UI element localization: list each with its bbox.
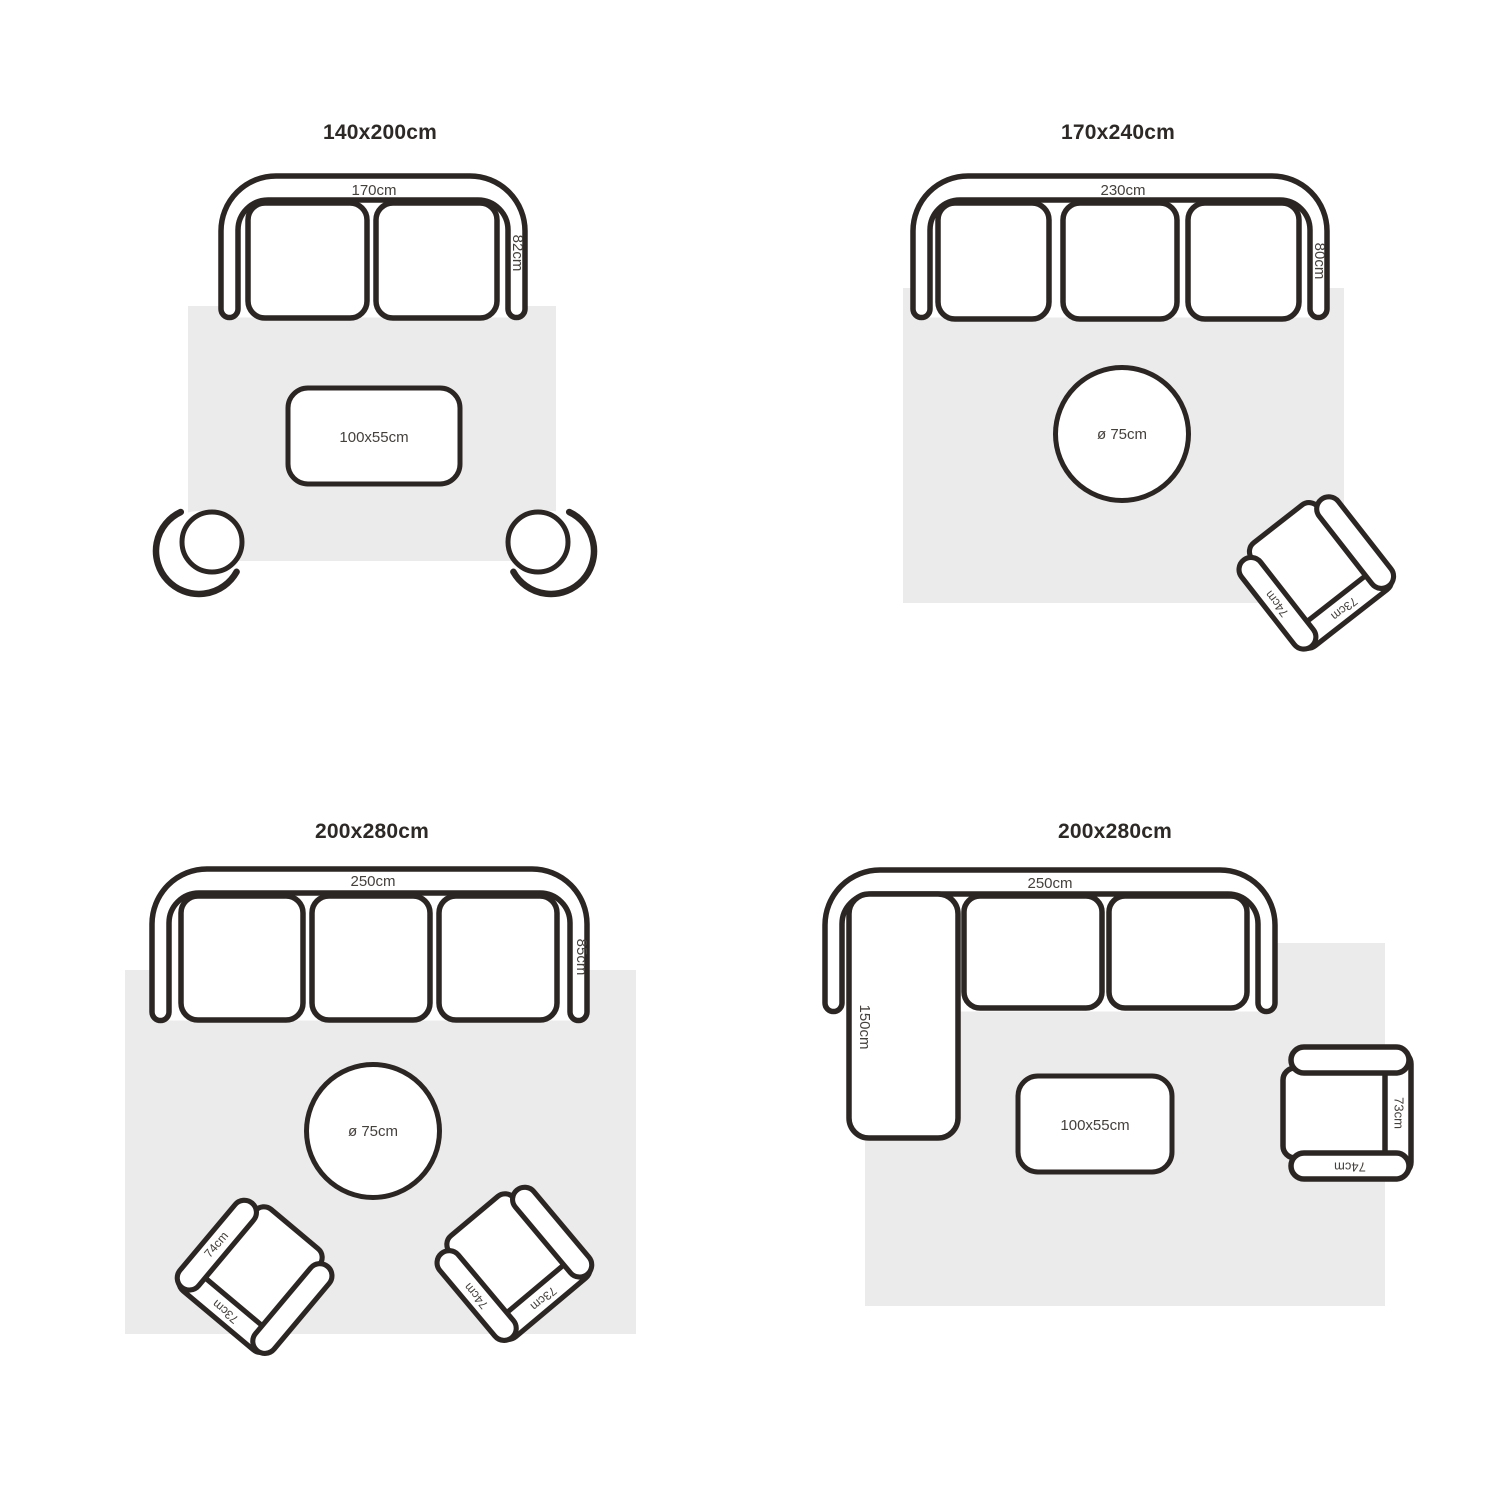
sofa-cushion [1188, 203, 1299, 319]
armchair-width-label: 73cm [1392, 1097, 1407, 1129]
tub-chair-left [156, 511, 242, 594]
sofa-2-seat: 170cm 82cm [221, 176, 526, 318]
armchair-arm-right [1291, 1047, 1409, 1073]
layout-140x200: 140x200cm 100x55cm 170cm 82cm [156, 121, 594, 594]
table-size-label: ø 75cm [348, 1123, 398, 1140]
sofa-depth-label: 80cm [1311, 243, 1328, 280]
coffee-table: 100x55cm [1018, 1076, 1172, 1172]
size-title: 140x200cm [323, 121, 437, 144]
floor-plan-canvas: 140x200cm 100x55cm 170cm 82cm 170x240cm [0, 0, 1500, 1500]
table-size-label: 100x55cm [339, 429, 408, 446]
size-title: 200x280cm [1058, 820, 1172, 843]
chair-seat [508, 512, 568, 572]
sofa-width-label: 230cm [1100, 182, 1145, 199]
sofa-depth-label: 85cm [573, 939, 590, 976]
sofa-cushion [312, 896, 430, 1020]
sofa-cushion [248, 203, 367, 318]
sofa-3-seat: 250cm 85cm [152, 869, 590, 1021]
size-title: 170x240cm [1061, 121, 1175, 144]
sofa-cushion [1063, 203, 1177, 319]
round-side-table: ø 75cm [307, 1065, 440, 1198]
sofa-width-label: 170cm [351, 182, 396, 199]
size-title: 200x280cm [315, 820, 429, 843]
layout-200x280-b: 200x280cm 250cm 150cm 100x55cm 74cm 73cm [825, 820, 1411, 1306]
chaise-length-label: 150cm [856, 1004, 873, 1049]
sofa-cushion [1109, 896, 1247, 1008]
sofa-depth-label: 82cm [509, 235, 526, 272]
coffee-table: 100x55cm [288, 388, 460, 484]
sofa-cushion [439, 896, 557, 1020]
chair-seat [182, 512, 242, 572]
table-size-label: ø 75cm [1097, 426, 1147, 443]
sofa-width-label: 250cm [1027, 875, 1072, 892]
sofa-cushion [181, 896, 303, 1020]
sofa-3-seat: 230cm 80cm [913, 176, 1328, 319]
armchair: 74cm 73cm [1283, 1047, 1411, 1179]
sofa-cushion [964, 896, 1102, 1008]
table-size-label: 100x55cm [1060, 1117, 1129, 1134]
armchair-depth-label: 74cm [1334, 1160, 1366, 1175]
layout-170x240: 170x240cm ø 75cm 230cm 80cm 74cm 73cm [903, 121, 1400, 655]
rug-size-guide: 140x200cm 100x55cm 170cm 82cm 170x240cm [0, 0, 1500, 1500]
layout-200x280-a: 200x280cm ø 75cm 250cm 85cm 74cm 73cm [125, 820, 636, 1360]
tub-chair-right [508, 511, 594, 594]
round-side-table: ø 75cm [1056, 368, 1189, 501]
sofa-width-label: 250cm [350, 873, 395, 890]
armchair-seat [1283, 1068, 1393, 1158]
sofa-cushion [938, 203, 1049, 319]
sofa-cushion [376, 203, 497, 318]
